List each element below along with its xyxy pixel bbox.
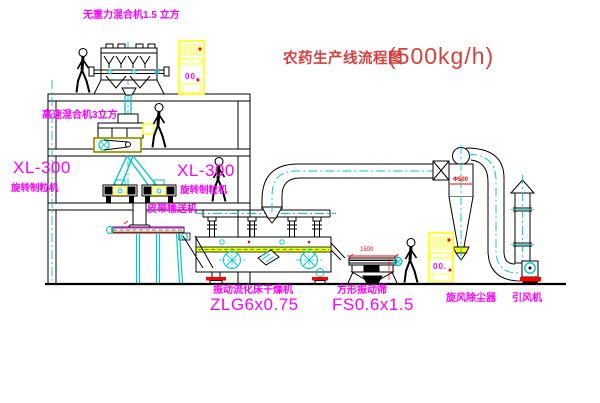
granulator-left-name-label: 旋转制粒机 — [11, 184, 59, 194]
gravity-free-mixer-label: 无重力混合机1.5 立方 — [83, 11, 180, 21]
dryer-model-label: ZLG6x0.75 — [210, 296, 299, 313]
induced-draft-fan — [520, 261, 541, 284]
belt-conveyor-label: 皮带输送机 — [147, 205, 197, 215]
sieve-length-dim: 1500 — [360, 247, 373, 253]
fluid-bed-dryer — [183, 210, 345, 284]
granulator-right-model-label: XL-300 — [177, 162, 235, 179]
cyclone-diameter-dim: Φ500 — [453, 177, 468, 183]
cabinet1-display: 00. — [185, 73, 199, 81]
y-chute — [113, 156, 157, 186]
page-title: 农药生产线流程图 — [283, 52, 403, 67]
page-title-capacity: (500kg/h) — [388, 45, 494, 68]
granulator-right-name-label: 旋转制粒机 — [180, 186, 228, 196]
sieve-model-label: FS0.6x1.5 — [332, 296, 414, 313]
cabinet2-display: 00. — [433, 263, 447, 271]
belt-conveyor — [107, 221, 191, 284]
square-sieve — [347, 254, 402, 284]
granulator-left — [103, 180, 137, 203]
exhaust-duct — [262, 164, 450, 223]
high-speed-mixer — [94, 95, 154, 152]
control-cabinet-top — [179, 41, 204, 94]
dust-collector-label: 旋风除尘器 — [446, 294, 496, 304]
gravity-free-mixer — [89, 44, 169, 95]
person-figure — [405, 239, 418, 283]
granulator-left-model-label: XL-300 — [13, 159, 71, 176]
duct-damper — [433, 161, 449, 180]
person-figure — [77, 49, 90, 93]
high-speed-mixer-label: 高速混合机3立方 — [42, 111, 118, 121]
control-cabinet-ground — [429, 233, 453, 283]
fan-label: 引风机 — [512, 294, 542, 304]
outlet-pipe — [466, 148, 521, 281]
flowchart-page: 农药生产线流程图 (500kg/h) 无重力混合机1.5 立方 高速混合机3立方… — [0, 0, 600, 403]
